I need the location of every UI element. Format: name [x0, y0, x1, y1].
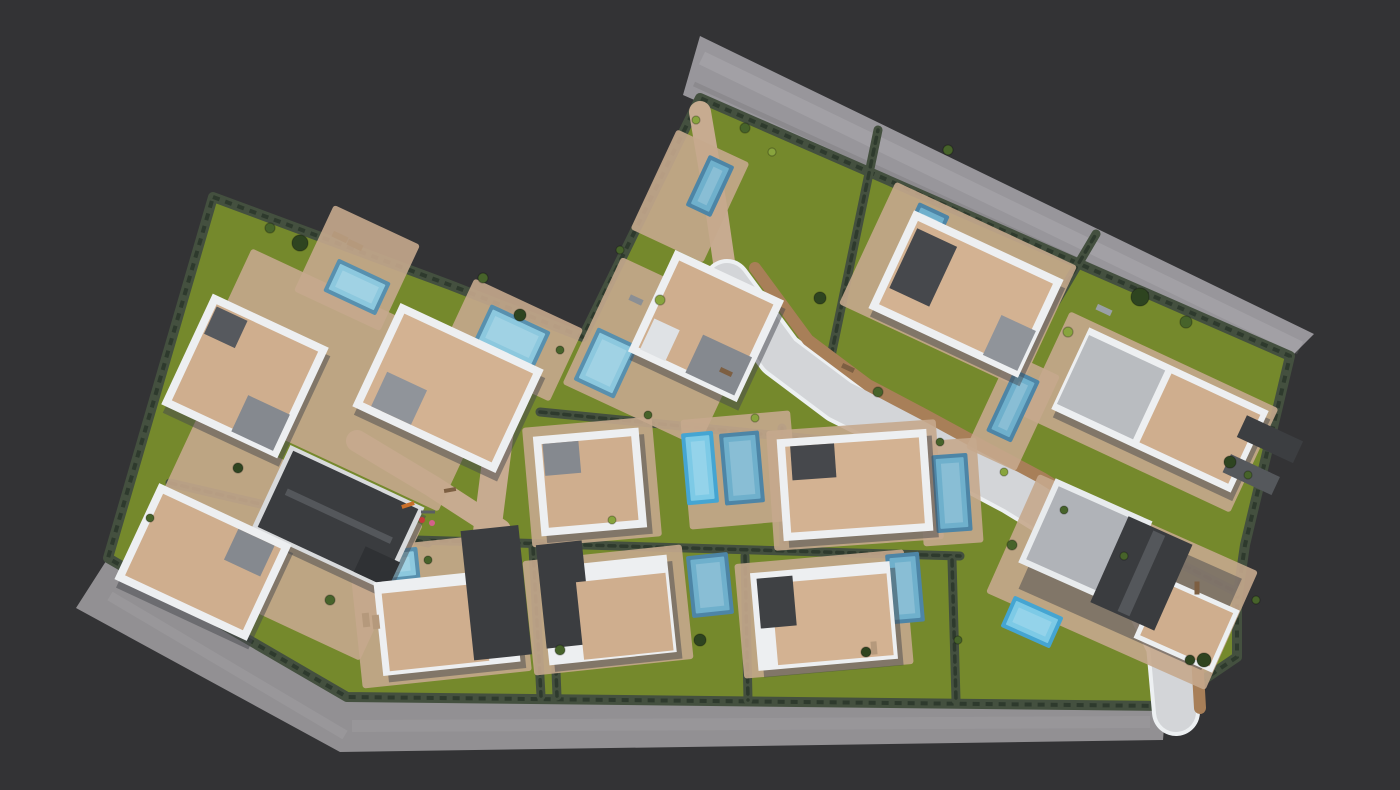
tree — [1197, 653, 1211, 667]
tree — [694, 634, 706, 646]
tree — [1244, 471, 1252, 479]
site-aerial-render — [0, 0, 1400, 790]
tree — [325, 595, 335, 605]
tree — [265, 223, 275, 233]
tree — [768, 148, 776, 156]
villa-9 — [777, 429, 939, 549]
tree — [814, 292, 826, 304]
playground-equipment — [429, 520, 435, 526]
villa-roof-section — [576, 573, 674, 660]
tree — [1120, 552, 1128, 560]
playground-equipment — [419, 517, 425, 523]
road-texture-streak — [352, 722, 1150, 726]
pool-ripple-highlight — [729, 440, 756, 496]
tree — [1063, 327, 1073, 337]
tree — [424, 556, 432, 564]
bench — [1195, 582, 1200, 595]
tree — [1131, 288, 1149, 306]
tree — [1007, 540, 1017, 550]
render-canvas — [0, 0, 1400, 790]
sun-lounger — [870, 641, 877, 654]
tree — [1000, 468, 1008, 476]
swimming-pool — [686, 552, 734, 618]
tree — [692, 116, 700, 124]
tree — [556, 346, 564, 354]
villa-12 — [750, 561, 904, 678]
tree — [292, 235, 308, 251]
playground-equipment — [421, 511, 435, 514]
tree — [943, 145, 953, 155]
tree — [555, 645, 565, 655]
tree — [936, 438, 944, 446]
tree — [655, 295, 665, 305]
tree — [1224, 456, 1236, 468]
swimming-pool — [681, 431, 719, 506]
tree — [1185, 655, 1195, 665]
tree — [233, 463, 243, 473]
tree — [1252, 596, 1260, 604]
pool-ripple-highlight — [696, 562, 724, 608]
villa-roof-section — [756, 576, 796, 629]
tree — [873, 387, 883, 397]
tree — [751, 414, 759, 422]
tree — [616, 246, 624, 254]
tree — [1060, 506, 1068, 514]
tree — [514, 309, 526, 321]
tree — [954, 636, 962, 644]
swimming-pool — [719, 430, 765, 505]
villa-roof-section — [543, 441, 582, 476]
sun-lounger — [362, 613, 370, 628]
tree — [608, 516, 616, 524]
sun-lounger — [372, 615, 380, 630]
tree — [740, 123, 750, 133]
tree — [1180, 316, 1192, 328]
tree — [644, 411, 652, 419]
villa-roof-section — [790, 443, 836, 480]
tree — [478, 273, 488, 283]
tree — [146, 514, 154, 522]
tree — [861, 647, 871, 657]
villa-8 — [533, 427, 653, 543]
